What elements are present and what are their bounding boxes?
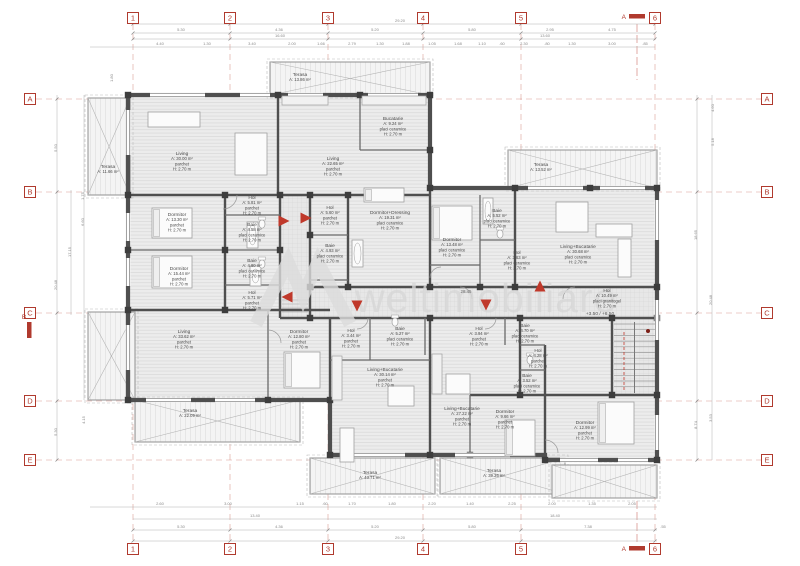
dimension-text: 1.68 [454, 41, 463, 46]
dimension-text: 5.20 [371, 27, 380, 32]
grid-marker-col-5-bottom: 5 [516, 544, 527, 555]
dimension-text: .85 [642, 41, 648, 46]
window [240, 93, 270, 98]
dimension-text: 2.79 [348, 41, 357, 46]
dimension-text: 1.80 [109, 73, 114, 82]
grid-marker-col-5-top: 5 [516, 13, 527, 24]
sofa [340, 428, 354, 462]
dimension-text: 1.80 [388, 501, 397, 506]
grid-marker-row-E-right: E [762, 455, 773, 466]
grid-marker-row-A-right: A [762, 94, 773, 105]
kitchen-counter [282, 96, 328, 105]
structural-column [275, 92, 281, 98]
structural-column [222, 192, 228, 198]
terrace [549, 462, 660, 501]
svg-text:D: D [764, 397, 770, 406]
dimension-text: 5.30 [177, 524, 186, 529]
dimension-text: 1.70 [348, 501, 357, 506]
floor-plan-canvas: weltimobiliare LivingA: 30.00 m²parchetH… [0, 0, 800, 566]
structural-column [125, 247, 131, 253]
grid-marker-col-6-bottom: 6 [650, 544, 661, 555]
svg-text:A: A [622, 546, 627, 553]
dimension-text: 4.75 [608, 27, 617, 32]
svg-text:4: 4 [421, 545, 425, 554]
dimension-text: 13.60 [540, 33, 551, 38]
dimension-text: 4.36 [275, 524, 284, 529]
bed [598, 402, 634, 444]
grid-marker-col-1-top: 1 [128, 13, 139, 24]
structural-column [222, 307, 228, 313]
svg-text:5: 5 [519, 545, 523, 554]
structural-column [277, 247, 283, 253]
dimension-text: 4.40 [156, 41, 165, 46]
dimension-text: 8.74 [693, 420, 698, 429]
svg-text:3: 3 [326, 14, 330, 23]
dimension-text: 1.30 [568, 41, 577, 46]
dimension-text: 2.30 [520, 41, 529, 46]
dimension-text: 2.95 [546, 27, 555, 32]
grid-marker-col-3-top: 3 [323, 13, 334, 24]
dimension-text: 4.15 [81, 415, 86, 424]
dimension-text: 2.20 [428, 501, 437, 506]
svg-text:A: A [27, 95, 32, 104]
svg-text:A: A [622, 14, 627, 21]
window [215, 398, 255, 403]
toilet [497, 227, 504, 238]
dimension-text: 13.40 [250, 513, 261, 518]
table [388, 386, 414, 406]
structural-column [265, 397, 271, 403]
dimension-text: .60 [499, 41, 505, 46]
dimension-text: 1.40 [466, 501, 475, 506]
window [655, 415, 660, 450]
dimension-text: 1.88 [402, 41, 411, 46]
svg-text:1: 1 [131, 545, 135, 554]
window [560, 458, 598, 463]
dimension-text: 5.80 [468, 27, 477, 32]
bed [432, 206, 472, 240]
dimension-text: 18.65 [693, 229, 698, 240]
dimension-text: 1.30 [376, 41, 385, 46]
structural-column [307, 192, 313, 198]
structural-column [307, 315, 313, 321]
dimension-text: 2.05 [628, 501, 637, 506]
structural-column [587, 185, 593, 191]
svg-text:2: 2 [228, 14, 232, 23]
svg-text:1: 1 [131, 14, 135, 23]
structural-column [542, 457, 548, 463]
dimension-text: 1.75 [80, 191, 85, 200]
section-marker-a-bottom: A [622, 546, 645, 553]
window [600, 186, 645, 191]
structural-column [277, 192, 283, 198]
dimension-text: 5.30 [53, 427, 58, 436]
bed [284, 352, 320, 388]
structural-column [654, 284, 660, 290]
dimension-text: 16.60 [275, 33, 286, 38]
dimension-text: 18.40 [550, 513, 561, 518]
grid-marker-row-C-right: C [762, 308, 773, 319]
window [528, 186, 583, 191]
dimension-text: 2.00 [288, 41, 297, 46]
dimension-text: 1.66 [317, 41, 326, 46]
svg-text:6: 6 [653, 545, 657, 554]
svg-text:6: 6 [653, 14, 657, 23]
structural-column [125, 397, 131, 403]
floor-plan: weltimobiliare LivingA: 30.00 m²parchetH… [0, 0, 800, 566]
watermark-text: weltimobiliare [354, 275, 617, 321]
structural-column [427, 92, 433, 98]
window [126, 325, 131, 370]
bathtub [352, 240, 363, 267]
table [235, 133, 267, 175]
corridor-length-label: 28.45 [461, 289, 473, 294]
window [618, 458, 648, 463]
grid-marker-row-A-left: A [25, 94, 36, 105]
dimension-text: 3.40 [248, 41, 257, 46]
terrace [505, 147, 660, 191]
structural-column [609, 392, 615, 398]
dimension-text: 4.60 [710, 103, 715, 112]
dimension-text: .55 [660, 524, 666, 529]
dimension-text: .60 [322, 501, 328, 506]
svg-text:3: 3 [326, 545, 330, 554]
dimension-text: 1.30 [203, 41, 212, 46]
structural-column [427, 185, 433, 191]
svg-text:A: A [764, 95, 769, 104]
dimension-text: 2.25 [508, 501, 517, 506]
dimension-text: 17.15 [67, 246, 72, 257]
sofa [596, 224, 632, 237]
stair-marker-dot [646, 329, 650, 333]
grid-marker-col-4-bottom: 4 [418, 544, 429, 555]
grid-marker-row-E-left: E [25, 455, 36, 466]
dimension-text: 29.20 [395, 18, 406, 23]
svg-text:C: C [27, 309, 33, 318]
terrace [132, 397, 303, 445]
dimension-text: 1.35 [588, 501, 597, 506]
dimension-text: 1.15 [296, 501, 305, 506]
dimension-text: 5.20 [371, 524, 380, 529]
structural-column [125, 192, 131, 198]
dimension-text: .80 [544, 41, 550, 46]
dimension-text: 29.20 [395, 535, 406, 540]
grid-marker-col-2-top: 2 [225, 13, 236, 24]
table [556, 202, 588, 232]
dimension-text: 5.80 [468, 524, 477, 529]
window [655, 300, 660, 340]
dimension-text: 20.48 [708, 294, 713, 305]
dimension-text: 3.00 [608, 41, 617, 46]
dimension-text: 20.48 [53, 279, 58, 290]
window [126, 258, 131, 286]
dimension-text: 3.00 [224, 501, 233, 506]
dimension-text: 1.10 [478, 41, 487, 46]
dimension-text: 3.53 [708, 413, 713, 422]
structural-column [307, 232, 313, 238]
structural-column [512, 185, 518, 191]
structural-column [654, 185, 660, 191]
dimension-text: 4.36 [275, 27, 284, 32]
structural-column [125, 307, 131, 313]
structural-column [222, 247, 228, 253]
structural-column [125, 92, 131, 98]
dimension-text: 2.60 [156, 501, 165, 506]
window [455, 453, 510, 458]
grid-marker-col-3-bottom: 3 [323, 544, 334, 555]
structural-column [427, 452, 433, 458]
svg-text:E: E [27, 456, 32, 465]
dimension-text: 2.00 [548, 501, 557, 506]
structural-column [427, 147, 433, 153]
window [150, 93, 205, 98]
window [126, 110, 131, 155]
window [126, 213, 131, 241]
section-marker-a-top: A [622, 14, 645, 21]
sofa [618, 239, 631, 277]
grid-marker-row-B-right: B [762, 187, 773, 198]
structural-column [654, 457, 660, 463]
dimension-text: 6.60 [80, 217, 85, 226]
svg-text:5: 5 [519, 14, 523, 23]
kitchen-counter [362, 96, 426, 105]
svg-text:B: B [22, 314, 26, 321]
dimension-text: 5.18 [710, 137, 715, 146]
dimension-text: 5.30 [177, 27, 186, 32]
svg-text:C: C [764, 309, 770, 318]
bed [364, 188, 404, 202]
grid-marker-col-6-top: 6 [650, 13, 661, 24]
sofa [148, 112, 200, 127]
grid-marker-row-B-left: B [25, 187, 36, 198]
grid-marker-col-4-top: 4 [418, 13, 429, 24]
svg-text:2: 2 [228, 545, 232, 554]
kitchen-counter [332, 356, 342, 400]
svg-text:D: D [27, 397, 33, 406]
svg-text:B: B [27, 188, 32, 197]
grid-marker-row-D-right: D [762, 396, 773, 407]
svg-text:4: 4 [421, 14, 425, 23]
grid-marker-col-1-bottom: 1 [128, 544, 139, 555]
structural-column [327, 452, 333, 458]
window [146, 398, 191, 403]
grid-marker-row-D-left: D [25, 396, 36, 407]
dimension-text: 1.05 [428, 41, 437, 46]
level-label: +3.50 / +6.50 [586, 311, 615, 317]
dimension-text: 7.38 [584, 524, 593, 529]
table [446, 374, 470, 394]
window [655, 200, 660, 240]
grid-marker-col-2-bottom: 2 [225, 544, 236, 555]
structural-column [654, 392, 660, 398]
structural-column [345, 192, 351, 198]
dimension-text: 5.50 [53, 143, 58, 152]
kitchen-counter [432, 354, 442, 394]
svg-text:E: E [764, 456, 769, 465]
svg-text:B: B [764, 188, 769, 197]
structural-column [345, 284, 351, 290]
